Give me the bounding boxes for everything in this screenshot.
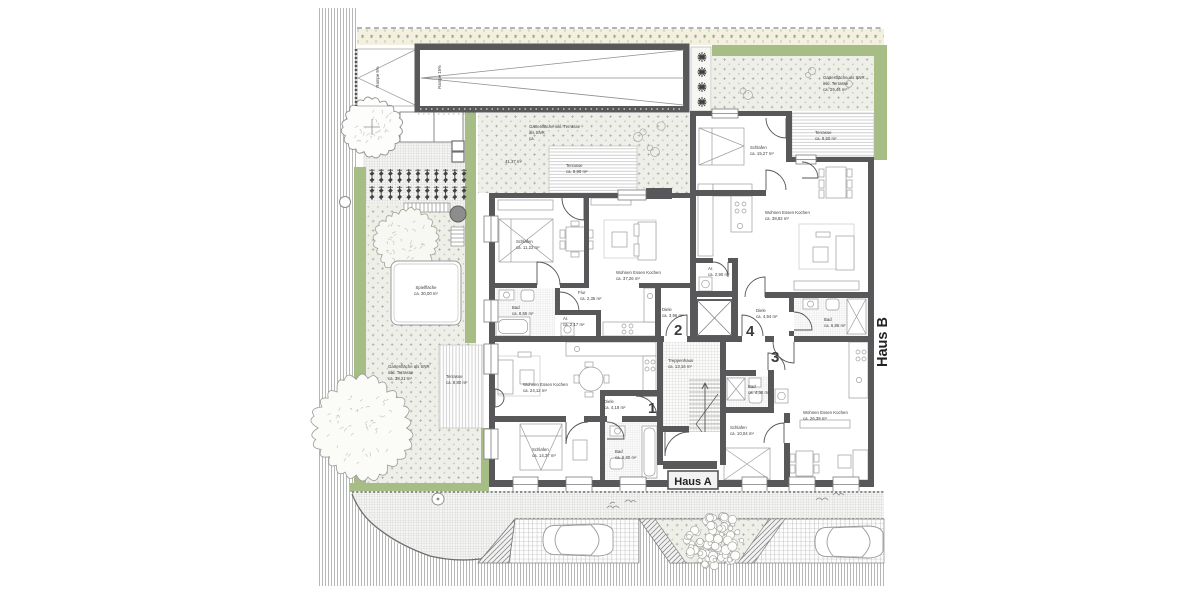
svg-text:3: 3 <box>771 349 779 366</box>
svg-text:Haus B: Haus B <box>875 317 891 367</box>
svg-text:ca. 38,82 m²: ca. 38,82 m² <box>765 216 789 221</box>
svg-text:Diele: Diele <box>662 307 672 312</box>
svg-text:ca. 30,00 m²: ca. 30,00 m² <box>414 291 438 296</box>
svg-text:Schlafen: Schlafen <box>532 447 549 452</box>
svg-text:ca. 2,35 m²: ca. 2,35 m² <box>580 296 602 301</box>
svg-text:Bad: Bad <box>512 305 520 310</box>
svg-text:Terrasse: Terrasse <box>446 374 463 379</box>
svg-text:Wohnen Essen Kochen: Wohnen Essen Kochen <box>616 270 661 275</box>
svg-text:Ar.: Ar. <box>708 266 713 271</box>
svg-text:1: 1 <box>648 400 656 417</box>
svg-text:41,37 m²: 41,37 m² <box>505 159 523 164</box>
svg-text:Terrasse: Terrasse <box>815 130 832 135</box>
svg-text:ca. 13,16 m²: ca. 13,16 m² <box>668 364 692 369</box>
svg-text:Flur: Flur <box>578 290 586 295</box>
svg-text:ca.: ca. <box>529 136 535 141</box>
svg-text:ca. 6,86 m²: ca. 6,86 m² <box>824 323 846 328</box>
svg-text:als SNR: als SNR <box>529 130 545 135</box>
svg-text:Schlafen: Schlafen <box>730 425 747 430</box>
svg-text:ca. 4,38 m²: ca. 4,38 m² <box>748 390 770 395</box>
svg-text:ca. 37,26 m²: ca. 37,26 m² <box>616 276 640 281</box>
svg-text:inkl. Terrasse: inkl. Terrasse <box>388 370 414 375</box>
svg-text:Gartenfläche als SNR: Gartenfläche als SNR <box>823 75 865 80</box>
svg-text:ca. 14,37 m²: ca. 14,37 m² <box>532 453 556 458</box>
svg-text:ca. 8,80 m²: ca. 8,80 m² <box>446 380 468 385</box>
svg-text:ca. 29,44 m²: ca. 29,44 m² <box>823 87 847 92</box>
svg-text:2: 2 <box>674 322 682 339</box>
svg-text:ca. 38,21 m²: ca. 38,21 m² <box>388 376 412 381</box>
svg-text:ca. 2,90 m²: ca. 2,90 m² <box>708 272 730 277</box>
svg-text:ca. 3,96 m²: ca. 3,96 m² <box>662 313 684 318</box>
svg-text:Ar.: Ar. <box>563 316 568 321</box>
svg-text:Rampe 15%: Rampe 15% <box>437 65 442 89</box>
svg-text:Gartenfläche als SNR: Gartenfläche als SNR <box>388 364 430 369</box>
svg-text:Diele: Diele <box>604 399 614 404</box>
svg-text:ca. 6,80 m²: ca. 6,80 m² <box>615 455 637 460</box>
svg-text:4: 4 <box>746 323 755 340</box>
svg-text:Treppenhaus: Treppenhaus <box>668 358 693 363</box>
svg-text:Bad: Bad <box>748 384 756 389</box>
svg-text:Terrasse: Terrasse <box>566 163 583 168</box>
svg-text:Bad: Bad <box>824 317 832 322</box>
svg-text:ca. 4,94 m²: ca. 4,94 m² <box>756 314 778 319</box>
svg-text:Wohnen Essen Kochen: Wohnen Essen Kochen <box>765 210 810 215</box>
svg-text:Bad: Bad <box>615 449 623 454</box>
svg-text:Spielfläche: Spielfläche <box>415 285 437 290</box>
svg-text:ca. 11,22 m²: ca. 11,22 m² <box>516 245 540 250</box>
svg-text:ca. 26,39 m²: ca. 26,39 m² <box>803 416 827 421</box>
svg-text:ca. 24,12 m²: ca. 24,12 m² <box>523 388 547 393</box>
svg-text:Gartenfläche inkl. Terrasse: Gartenfläche inkl. Terrasse <box>529 124 581 129</box>
svg-text:ca. 15,27 m²: ca. 15,27 m² <box>750 151 774 156</box>
svg-text:ca. 10,04 m²: ca. 10,04 m² <box>730 431 754 436</box>
svg-text:Schlafen: Schlafen <box>750 145 767 150</box>
svg-text:ca. 4,18 m²: ca. 4,18 m² <box>604 405 626 410</box>
svg-text:Rampe 5%: Rampe 5% <box>375 66 380 87</box>
svg-text:Diele: Diele <box>756 308 766 313</box>
svg-text:ca. 9,90 m²: ca. 9,90 m² <box>566 169 588 174</box>
svg-text:Haus A: Haus A <box>674 476 712 488</box>
svg-text:inkl. Terrasse: inkl. Terrasse <box>823 81 849 86</box>
svg-text:Wohnen Essen Kochen: Wohnen Essen Kochen <box>523 382 568 387</box>
svg-text:Wohnen Essen Kochen: Wohnen Essen Kochen <box>803 410 848 415</box>
svg-text:Schlafen: Schlafen <box>516 239 533 244</box>
svg-text:ca. 9,50 m²: ca. 9,50 m² <box>815 136 837 141</box>
svg-text:ca. 8,55 m²: ca. 8,55 m² <box>512 311 534 316</box>
svg-text:ca. 2,17 m²: ca. 2,17 m² <box>563 322 585 327</box>
